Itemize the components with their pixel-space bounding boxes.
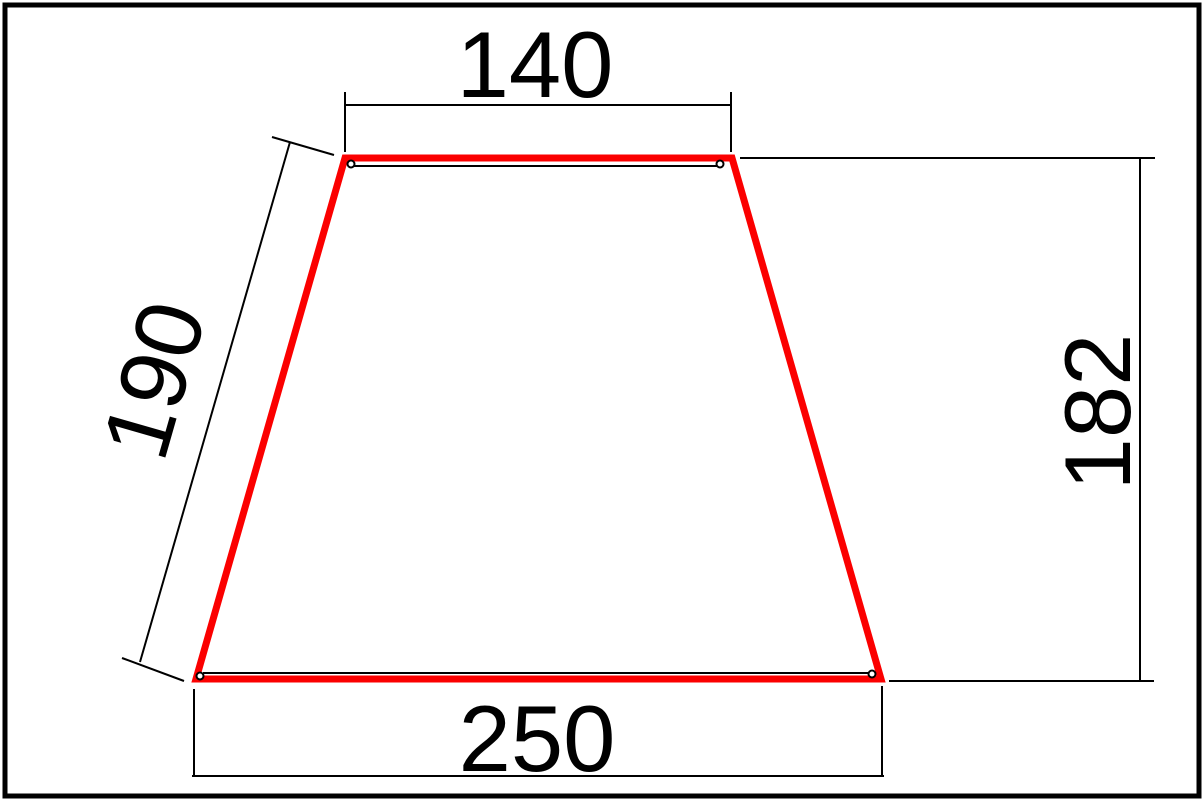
- extension-line-bottom: [122, 658, 184, 681]
- corner-marker-top-right: [717, 161, 724, 168]
- trapezoid-shape: [196, 158, 881, 680]
- dimension-label-top-width: 140: [457, 12, 614, 117]
- dimension-label-bottom-width: 250: [459, 686, 616, 791]
- dimension-top-width: 140: [344, 12, 732, 152]
- corner-marker-top-left: [348, 161, 355, 168]
- technical-drawing-canvas: 140 250 182 190: [0, 0, 1204, 803]
- dimension-label-right-height: 182: [1045, 334, 1150, 491]
- trapezoid-outline: [196, 158, 881, 679]
- dimension-bottom-width: 250: [192, 686, 884, 791]
- corner-marker-bottom-left: [197, 673, 204, 680]
- extension-line-top: [272, 137, 334, 155]
- corner-marker-bottom-right: [869, 671, 876, 678]
